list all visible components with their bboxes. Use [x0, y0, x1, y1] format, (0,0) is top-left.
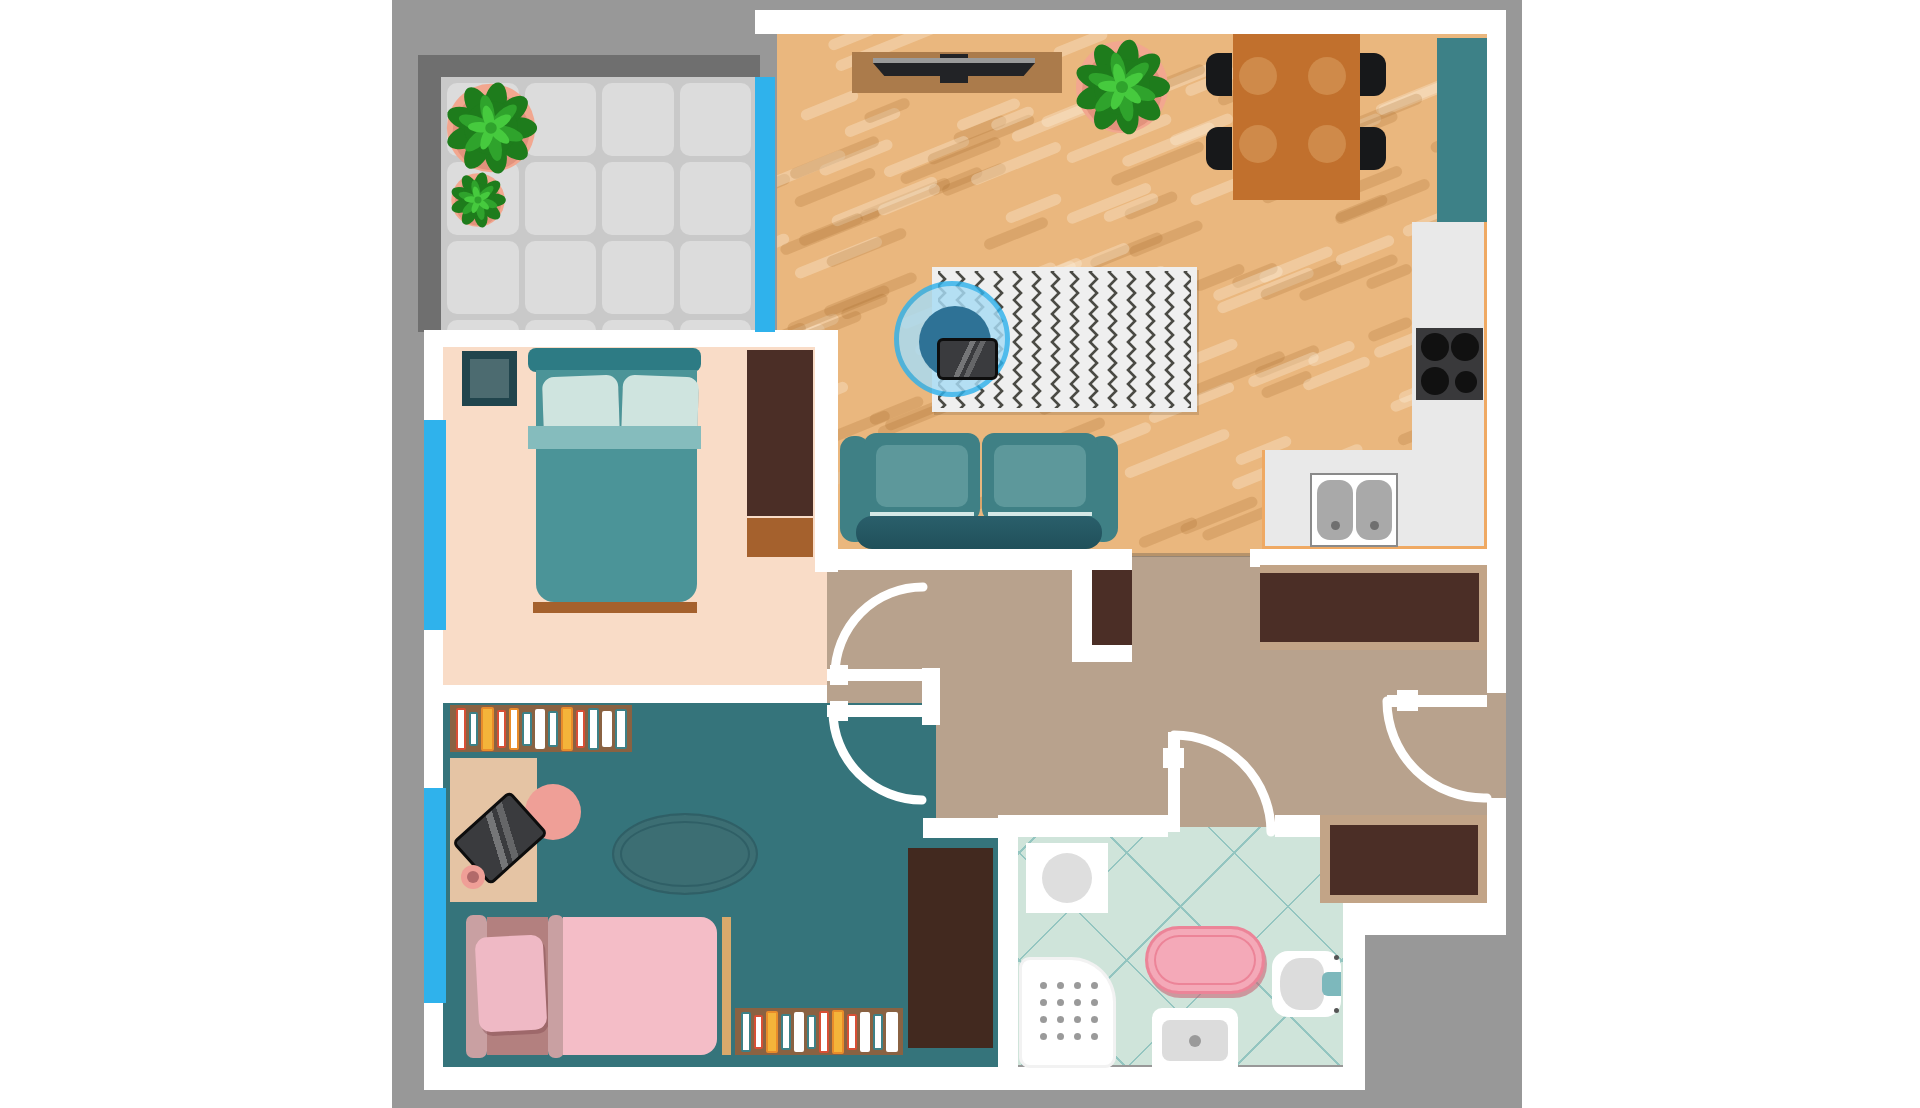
kitchen-tall-cabinet [1437, 38, 1487, 222]
toilet [1272, 951, 1341, 1017]
wall-top [755, 10, 1506, 34]
bathroom-door-leaf [1168, 732, 1180, 832]
kids-oval-rug [612, 813, 758, 895]
sofa-cushion-right [982, 433, 1098, 521]
sofa-cushion-left [864, 433, 980, 521]
hall-closet-bottom [1330, 825, 1478, 895]
sink-bowl [1162, 1020, 1228, 1061]
tv-mount [940, 76, 968, 83]
toilet-flush-button [1322, 972, 1341, 996]
window-kids-room [424, 788, 446, 1003]
dining-table [1233, 34, 1360, 200]
wall-bottom [424, 1067, 1365, 1090]
laptop-living-room [937, 338, 998, 380]
bathtub [1145, 926, 1265, 994]
wall-below-closet [1343, 903, 1506, 935]
bed-headboard [528, 348, 701, 372]
bedroom-dresser [747, 518, 813, 557]
tv-edge [873, 58, 1035, 63]
sink-basin-right [1356, 480, 1392, 540]
living-room-plant-icon [1072, 37, 1172, 137]
tv [873, 63, 1035, 76]
stove-top [1416, 328, 1483, 400]
kids-bookshelf-bottom [735, 1008, 903, 1055]
kids-desk-cup [461, 865, 485, 889]
floor-plan-illustration [0, 0, 1920, 1108]
washing-machine [1026, 843, 1108, 913]
kids-bed-blanket [563, 917, 717, 1055]
entry-doorway-floor [1487, 693, 1506, 798]
wall-bathroom-top-left [998, 815, 1168, 837]
dining-chair-top-left [1206, 53, 1232, 96]
wall-bedroom-top [424, 330, 838, 347]
wall-entry-nook-horizontal [1072, 645, 1132, 662]
window-balcony [755, 77, 775, 332]
kids-door-hinge [830, 701, 848, 721]
sofa-backrest [856, 516, 1102, 549]
shower-tray [1022, 960, 1113, 1065]
kids-bed-pillow [475, 934, 548, 1032]
bed-foot-bench [533, 602, 697, 613]
bedroom-door-hinge [830, 665, 848, 685]
kitchen-sink [1310, 473, 1398, 547]
hall-closet-top [1260, 573, 1479, 642]
wall-door-stub [922, 668, 940, 725]
toilet-bowl [1280, 958, 1324, 1010]
wall-bedroom-bottom [424, 685, 827, 703]
wall-bathroom-left [998, 837, 1018, 1067]
wall-living-bottom-left [815, 549, 1132, 570]
kids-bed-footboard [722, 917, 731, 1055]
entrance-door-hinge [1397, 690, 1418, 711]
bed-blanket-band [528, 426, 701, 449]
bedroom-doorway-floor [815, 572, 827, 685]
kids-bed-rail [548, 915, 564, 1058]
balcony-plant-small-icon [449, 171, 507, 229]
bedroom-wardrobe [747, 350, 813, 516]
wall-kids-bath-junction [923, 818, 1018, 838]
entry-cabinet [1092, 570, 1132, 645]
wall-right-upper [1487, 10, 1506, 693]
kids-bookshelf-top [450, 705, 632, 752]
wall-bedroom-living [815, 330, 838, 572]
living-hall-threshold [1132, 553, 1250, 557]
kids-wardrobe [908, 848, 993, 1048]
window-bedroom [424, 420, 446, 630]
bedside-table [462, 351, 517, 406]
dining-chair-bottom-right [1360, 127, 1386, 170]
bathroom-door-hinge [1163, 748, 1184, 768]
dining-chair-top-right [1360, 53, 1386, 96]
dining-chair-bottom-left [1206, 127, 1232, 170]
balcony-plant-large-icon [443, 80, 539, 176]
bathroom-sink [1152, 1008, 1238, 1067]
sink-basin-left [1317, 480, 1353, 540]
washer-drum [1042, 853, 1092, 903]
